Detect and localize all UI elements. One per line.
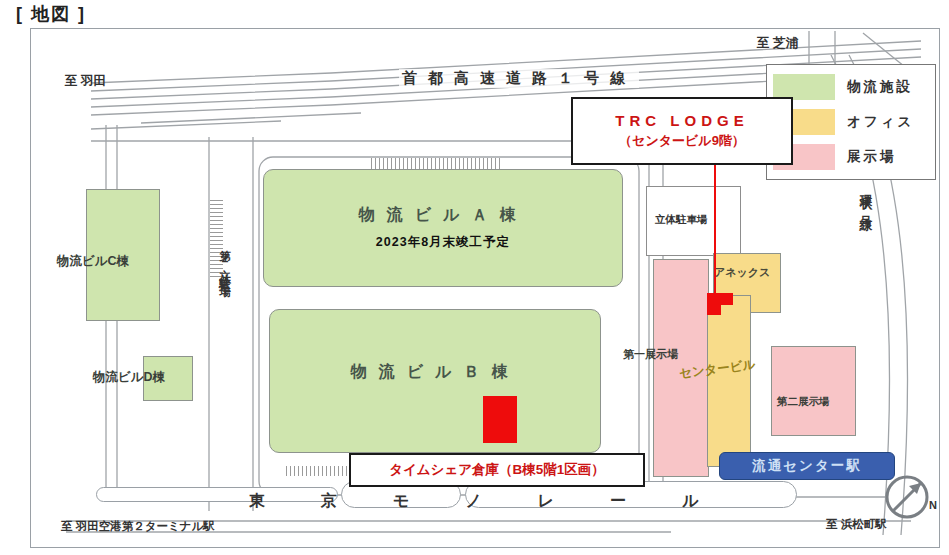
building-logistics-b: 物流ビルＢ棟	[269, 309, 601, 453]
trc-lodge-subtitle: （センタービル9階）	[619, 132, 745, 150]
direction-to-haneda-terminal2: 至 羽田空港第２ターミナル駅	[61, 519, 215, 534]
trc-lodge-location-marker	[707, 293, 733, 305]
legend-swatch-logistics	[773, 74, 835, 100]
legend-label-office: オフィス	[847, 113, 914, 131]
building-logistics-a-label: 物流ビルＡ棟	[359, 205, 528, 226]
building-parking: 立体駐車場	[646, 186, 741, 256]
building-center	[707, 295, 751, 467]
timeshare-callout-label: タイムシェア倉庫（B棟5階1区画）	[389, 461, 605, 479]
monorail-label: 東京モノレール	[249, 491, 755, 512]
building-logistics-d-label: 物流ビルD棟	[93, 369, 165, 386]
timeshare-callout: タイムシェア倉庫（B棟5階1区画）	[349, 453, 645, 487]
building-exhibition2	[771, 346, 856, 436]
loading-dock-hatch	[371, 158, 501, 169]
compass-north-label: N	[929, 499, 937, 511]
building-annex-label: アネックス	[714, 265, 770, 280]
expressway-label: 首都高速道路１号線	[399, 69, 639, 88]
legend-row-exhibition: 展示場	[773, 144, 929, 170]
ring-road-label: 環状７号線	[857, 184, 874, 212]
building-logistics-b-label: 物流ビルＢ棟	[270, 362, 600, 383]
trc-lodge-location-marker-leg	[707, 305, 721, 315]
legend-row-office: オフィス	[773, 109, 929, 135]
ryutsu-center-station-label: 流通センター駅	[752, 457, 861, 475]
building-exhibition1-label: 第一展示場	[623, 347, 678, 362]
building-logistics-c-label: 物流ビルC棟	[57, 253, 129, 270]
legend-row-logistics: 物流施設	[773, 74, 929, 100]
trc-lodge-callout: TRC LODGE （センタービル9階）	[571, 97, 793, 165]
building-parking-label: 立体駐車場	[655, 213, 708, 227]
building-logistics-a: 物流ビルＡ棟 2023年8月末竣工予定	[263, 169, 623, 287]
trc-lodge-title: TRC LODGE	[615, 112, 748, 129]
legend-label-logistics: 物流施設	[847, 78, 913, 96]
trc-lodge-leader-line	[714, 161, 716, 295]
legend-label-exhibition: 展示場	[847, 148, 897, 166]
building-logistics-a-note: 2023年8月末竣工予定	[376, 234, 510, 251]
direction-to-haneda: 至 羽田	[65, 73, 106, 90]
parking-no2-label: 第２立体駐車場	[217, 241, 232, 281]
site-map: 至 羽田 至 芝浦 首都高速道路１号線 環状７号線 物流施設 オフィス 展示場 …	[30, 28, 940, 548]
timeshare-unit-marker	[483, 396, 517, 443]
building-exhibition2-label: 第二展示場	[777, 395, 830, 409]
direction-to-hamamatsucho: 至 浜松町駅	[826, 517, 887, 532]
direction-to-shibaura: 至 芝浦	[757, 35, 798, 52]
ryutsu-center-station: 流通センター駅	[719, 452, 895, 480]
page-title: [ 地図 ]	[16, 2, 86, 26]
